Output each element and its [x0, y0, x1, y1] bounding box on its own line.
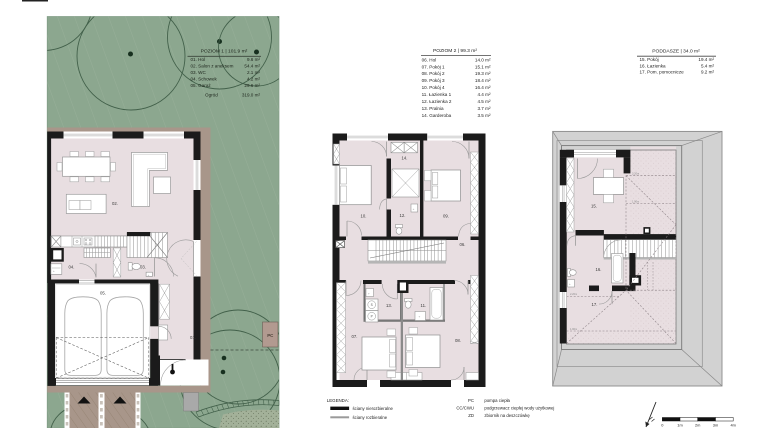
- svg-text:08. Pokój 2: 08. Pokój 2: [422, 71, 445, 76]
- svg-text:06.: 06.: [460, 242, 466, 247]
- svg-text:+: +: [413, 207, 415, 211]
- svg-text:+: +: [569, 282, 571, 286]
- svg-text:15.1 m²: 15.1 m²: [475, 64, 491, 69]
- svg-text:podgrzewacz ciepłej wody użytk: podgrzewacz ciepłej wody użytkowej: [484, 405, 554, 410]
- svg-text:P: P: [371, 315, 373, 319]
- svg-text:PC: PC: [267, 333, 274, 338]
- svg-text:5.4 m²: 5.4 m²: [701, 63, 714, 68]
- svg-text:05.: 05.: [100, 291, 106, 296]
- svg-text:05. Garaż: 05. Garaż: [191, 83, 212, 88]
- svg-text:01. Hol: 01. Hol: [191, 57, 206, 62]
- svg-text:1.90m: 1.90m: [632, 200, 639, 204]
- svg-text:1.90m: 1.90m: [570, 327, 577, 331]
- svg-text:17. Pom. pomocnicze: 17. Pom. pomocnicze: [640, 70, 685, 75]
- svg-text:29.6 m²: 29.6 m²: [244, 83, 260, 88]
- svg-text:14.0 m²: 14.0 m²: [475, 57, 491, 62]
- svg-text:ZD: ZD: [468, 413, 474, 418]
- svg-text:09. Pokój 3: 09. Pokój 3: [422, 78, 445, 83]
- svg-text:14.: 14.: [402, 156, 408, 161]
- svg-text:02. Salon z aneksem: 02. Salon z aneksem: [191, 64, 234, 69]
- svg-text:4.2 m²: 4.2 m²: [247, 76, 260, 81]
- svg-text:16.4 m²: 16.4 m²: [475, 85, 491, 90]
- svg-text:13.: 13.: [386, 303, 392, 308]
- svg-text:17.: 17.: [592, 302, 598, 307]
- svg-text:18.4 m²: 18.4 m²: [475, 78, 491, 83]
- svg-text:4m: 4m: [730, 423, 735, 428]
- svg-text:3.5 m²: 3.5 m²: [477, 113, 490, 118]
- svg-text:+: +: [53, 269, 55, 273]
- svg-text:S: S: [371, 303, 373, 307]
- svg-text:14. Garderoba: 14. Garderoba: [422, 113, 452, 118]
- svg-text:zbiornik na deszczówkę: zbiornik na deszczówkę: [484, 413, 530, 418]
- svg-text:319.0 m²: 319.0 m²: [242, 93, 261, 98]
- svg-text:4.5 m²: 4.5 m²: [477, 99, 490, 104]
- svg-text:11.: 11.: [421, 303, 427, 308]
- svg-text:09.: 09.: [443, 214, 449, 219]
- svg-text:2.20m: 2.20m: [570, 292, 577, 296]
- svg-text:12. Łazienka 2: 12. Łazienka 2: [422, 99, 452, 104]
- svg-text:POZIOM 2 | 99.3 m²: POZIOM 2 | 99.3 m²: [433, 48, 477, 54]
- svg-text:06. Hol: 06. Hol: [422, 57, 437, 62]
- svg-text:POZIOM 1 | 101.9 m²: POZIOM 1 | 101.9 m²: [201, 49, 248, 55]
- svg-text:9.6 m²: 9.6 m²: [247, 57, 260, 62]
- svg-text:ściany nierozbieralne: ściany nierozbieralne: [353, 406, 394, 411]
- svg-text:3.7 m²: 3.7 m²: [477, 106, 490, 111]
- svg-text:4.4 m²: 4.4 m²: [477, 92, 490, 97]
- svg-text:01.: 01.: [190, 335, 196, 340]
- svg-text:LEGENDA:: LEGENDA:: [327, 398, 349, 403]
- svg-text:9.2 m²: 9.2 m²: [701, 70, 714, 75]
- svg-text:54.4 m²: 54.4 m²: [244, 64, 260, 69]
- svg-text:15. Pokój: 15. Pokój: [640, 57, 659, 62]
- svg-text:CC/CWU: CC/CWU: [456, 405, 474, 410]
- svg-text:Ogród: Ogród: [205, 93, 218, 98]
- svg-text:04.: 04.: [69, 264, 75, 269]
- svg-text:13. Pralnia: 13. Pralnia: [422, 106, 444, 111]
- svg-text:10. Pokój 4: 10. Pokój 4: [422, 85, 445, 90]
- svg-text:2.20m: 2.20m: [632, 172, 639, 176]
- svg-text:PC: PC: [468, 398, 474, 403]
- svg-text:19.3 m²: 19.3 m²: [475, 71, 491, 76]
- svg-text:+: +: [368, 291, 370, 295]
- svg-text:04. Schowek: 04. Schowek: [191, 76, 218, 81]
- svg-text:15.: 15.: [591, 204, 597, 209]
- svg-text:+: +: [419, 315, 421, 319]
- svg-text:2.1 m²: 2.1 m²: [247, 70, 260, 75]
- svg-text:0: 0: [661, 423, 664, 428]
- svg-text:07.: 07.: [352, 334, 358, 339]
- svg-text:PODDASZE | 34.0 m²: PODDASZE | 34.0 m²: [652, 49, 700, 55]
- svg-text:pompa ciepła: pompa ciepła: [484, 398, 510, 403]
- svg-text:02.: 02.: [112, 201, 118, 206]
- svg-text:07. Pokój 1: 07. Pokój 1: [422, 64, 445, 69]
- svg-text:16. Łazienka: 16. Łazienka: [640, 63, 666, 68]
- svg-text:12.: 12.: [400, 213, 406, 218]
- svg-text:3m: 3m: [713, 423, 718, 428]
- svg-text:16.: 16.: [596, 267, 602, 272]
- svg-text:19.4 m²: 19.4 m²: [698, 57, 714, 62]
- svg-text:10.: 10.: [361, 214, 367, 219]
- svg-text:2m: 2m: [695, 423, 700, 428]
- svg-text:08.: 08.: [455, 338, 461, 343]
- svg-text:1m: 1m: [677, 423, 682, 428]
- svg-text:11. Łazienka 1: 11. Łazienka 1: [422, 92, 452, 97]
- svg-text:03. WC: 03. WC: [191, 70, 207, 75]
- svg-text:03.: 03.: [140, 264, 146, 269]
- svg-text:ściany rozbieralne: ściany rozbieralne: [353, 415, 388, 420]
- svg-text:+: +: [148, 273, 150, 277]
